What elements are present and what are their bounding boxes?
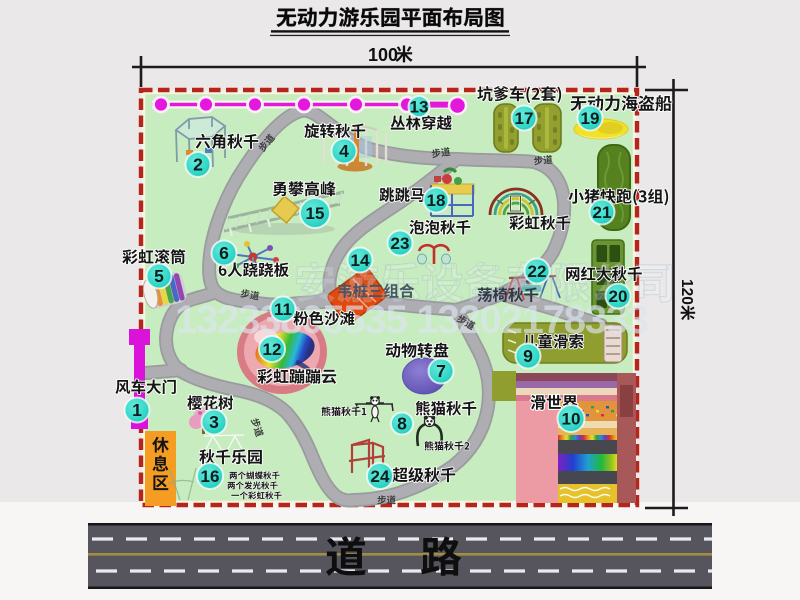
svg-text:7: 7: [436, 361, 446, 381]
svg-text:11: 11: [274, 300, 292, 319]
svg-text:21: 21: [593, 203, 612, 222]
svg-text:22: 22: [528, 262, 547, 281]
svg-text:14: 14: [351, 251, 370, 270]
svg-text:4: 4: [339, 141, 349, 161]
svg-text:15: 15: [306, 204, 325, 223]
svg-text:23: 23: [391, 234, 410, 253]
svg-text:100: 100: [368, 45, 398, 65]
svg-text:20: 20: [609, 287, 628, 306]
svg-text:24: 24: [371, 467, 390, 486]
svg-text:1: 1: [132, 400, 142, 420]
svg-text:120: 120: [678, 279, 695, 305]
svg-text:8: 8: [397, 414, 407, 434]
svg-text:17: 17: [515, 109, 534, 128]
svg-text:13: 13: [410, 98, 429, 117]
svg-text:19: 19: [581, 109, 600, 128]
svg-text:5: 5: [154, 266, 164, 286]
svg-text:9: 9: [523, 346, 533, 366]
svg-text:10: 10: [562, 410, 581, 429]
svg-text:6: 6: [219, 243, 229, 263]
svg-text:3: 3: [209, 412, 219, 432]
svg-text:2: 2: [193, 155, 203, 175]
svg-text:16: 16: [201, 467, 220, 486]
svg-text:18: 18: [427, 191, 446, 210]
svg-text:12: 12: [263, 340, 282, 359]
